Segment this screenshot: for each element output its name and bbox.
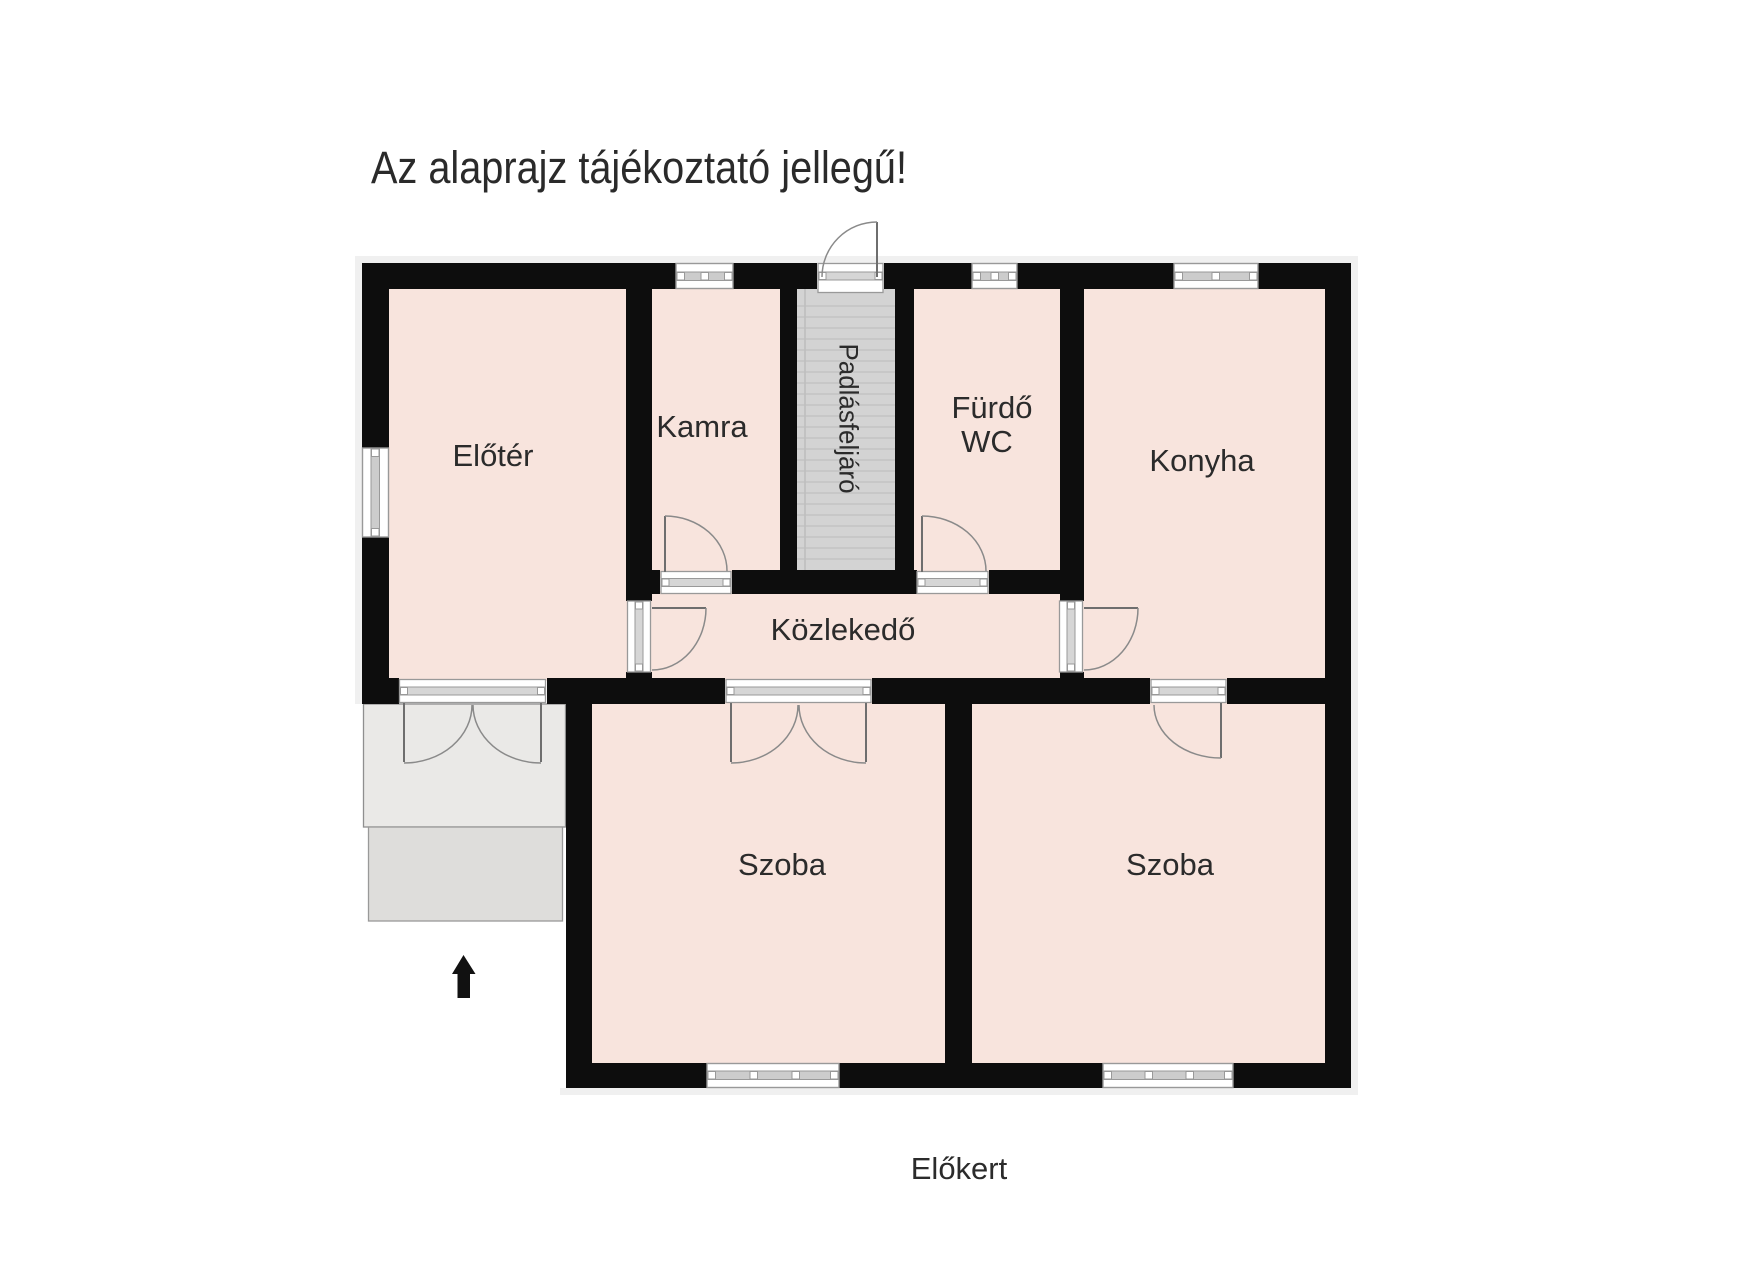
svg-text:Kamra: Kamra <box>656 409 748 444</box>
svg-text:Szoba: Szoba <box>1126 847 1215 882</box>
svg-text:Közlekedő: Közlekedő <box>771 612 916 647</box>
svg-text:Padlásfeljáró: Padlásfeljáró <box>834 344 864 494</box>
svg-text:Szoba: Szoba <box>738 847 827 882</box>
svg-text:Előtér: Előtér <box>453 438 534 473</box>
svg-text:Előkert: Előkert <box>911 1151 1008 1186</box>
svg-text:Az alaprajz tájékoztató jelleg: Az alaprajz tájékoztató jellegű! <box>371 142 907 193</box>
svg-text:Konyha: Konyha <box>1149 443 1255 478</box>
svg-text:WC: WC <box>961 424 1013 459</box>
svg-text:Fürdő: Fürdő <box>952 390 1033 425</box>
